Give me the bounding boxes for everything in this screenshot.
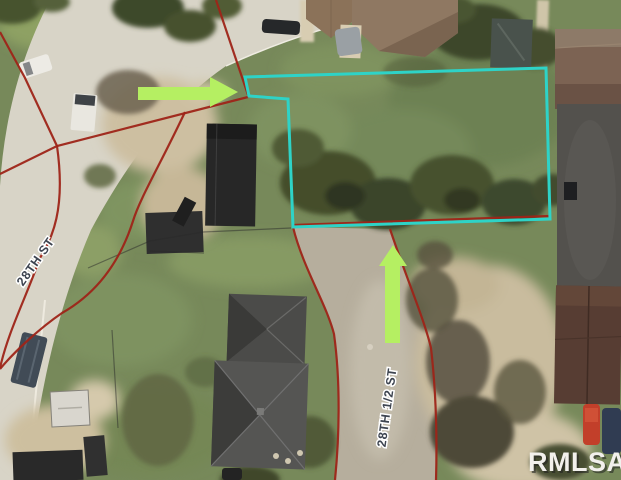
- aerial-map-svg: 28TH ST 28TH 1/2 ST RMLSA RMLSA: [0, 0, 621, 480]
- watermark-rmlsa: RMLSA: [528, 447, 621, 477]
- gray-car: [334, 26, 363, 56]
- dark-shed: [490, 18, 533, 68]
- house-center-left: [205, 124, 257, 227]
- dark-car-top: [262, 19, 301, 36]
- aerial-map-photo: 28TH ST 28TH 1/2 ST RMLSA RMLSA: [0, 0, 621, 480]
- building-right-top: [555, 29, 621, 109]
- white-van: [70, 93, 97, 132]
- white-shed: [50, 390, 90, 427]
- house-bottom-left-roof: [12, 450, 83, 480]
- parking-lot: [557, 104, 621, 298]
- building-right-bottom: [554, 285, 621, 404]
